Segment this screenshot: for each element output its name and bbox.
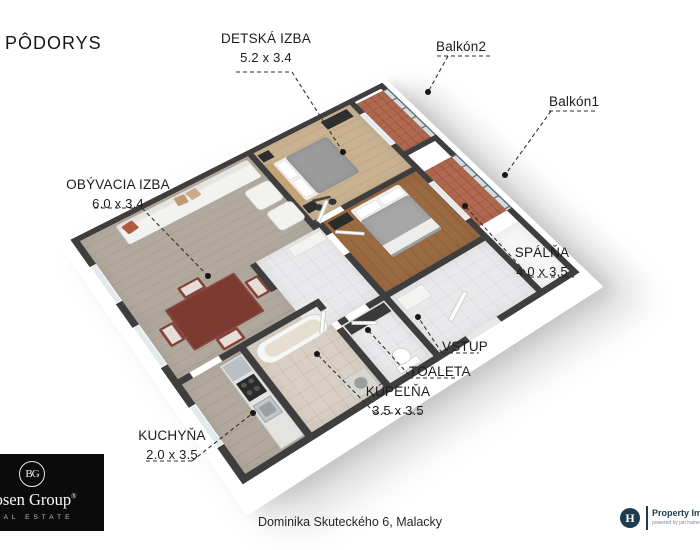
room-name: SPÁLŇA — [500, 244, 584, 263]
agency-logo: BG Bosen Group® REAL ESTATE — [0, 454, 104, 531]
burner — [240, 382, 248, 389]
room-name: TOALETA — [409, 363, 471, 382]
burner — [246, 389, 254, 396]
room-name: Balkón1 — [549, 93, 599, 112]
credit-divider — [646, 506, 648, 530]
room-dot-balkon1 — [502, 172, 508, 178]
property-address: Dominika Skuteckého 6, Malacky — [0, 515, 700, 529]
room-name: DETSKÁ IZBA — [198, 30, 334, 49]
label-obyvacia: OBÝVACIA IZBA 6.0 x 3.4 — [48, 176, 188, 213]
registered-mark: ® — [71, 493, 76, 501]
label-balkon2: Balkón2 — [436, 38, 486, 57]
agency-tagline: REAL ESTATE — [0, 514, 104, 521]
page-title: PÔDORYS — [5, 33, 102, 54]
room-dot-balkon2 — [425, 89, 431, 95]
burner — [253, 385, 261, 392]
toilet-door-leaf — [352, 321, 378, 325]
agency-name-text: Bosen Group — [0, 490, 71, 509]
room-dims: 5.2 x 3.4 — [198, 49, 334, 67]
room-name: KUCHYŇA — [130, 427, 214, 446]
sink-basin — [258, 401, 277, 418]
room-dims: 4.0 x 3.5 — [500, 263, 584, 281]
agency-monogram-icon: BG — [19, 461, 45, 487]
leader-balkon1 — [505, 111, 597, 175]
label-vstup: VSTUP — [442, 338, 488, 357]
label-detska: DETSKÁ IZBA 5.2 x 3.4 — [198, 30, 334, 67]
credit-name: Property Imaging — [652, 508, 700, 518]
label-toaleta: TOALETA — [409, 363, 471, 382]
room-name: Balkón2 — [436, 38, 486, 57]
floor-plan-page: { "title": "PÔDORYS", "address": "Domini… — [0, 0, 700, 550]
leader-balkon2 — [428, 56, 492, 92]
label-spalna: SPÁLŇA 4.0 x 3.5 — [500, 244, 584, 281]
room-dims: 6.0 x 3.4 — [48, 195, 188, 213]
label-balkon1: Balkón1 — [549, 93, 599, 112]
room-name: OBÝVACIA IZBA — [48, 176, 188, 195]
burner — [247, 377, 255, 384]
label-kuchyna: KUCHYŇA 2.0 x 3.5 — [130, 427, 214, 464]
room-dims: 2.0 x 3.5 — [130, 446, 214, 464]
room-name: KÚPEĽŇA — [355, 383, 441, 402]
credit-h-icon: H — [620, 508, 640, 528]
room-name: VSTUP — [442, 338, 488, 357]
room-dims: 3.5 x 3.5 — [355, 402, 441, 420]
label-kupelna: KÚPEĽŇA 3.5 x 3.5 — [355, 383, 441, 420]
credit-sub: powered by jan hamersky — [652, 520, 700, 526]
agency-name: Bosen Group® — [0, 490, 104, 510]
